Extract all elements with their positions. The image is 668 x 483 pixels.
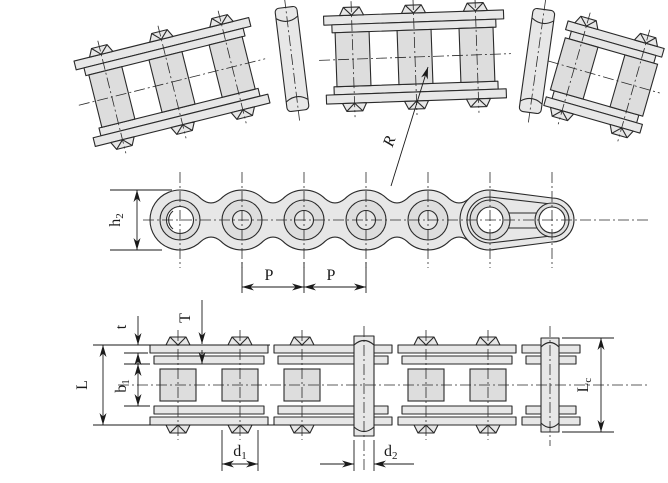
dim-label-d2: d2 [384, 443, 398, 462]
dim-T: T [177, 300, 202, 364]
dim-label-d1: d1 [233, 443, 247, 462]
chain-link [65, 2, 279, 161]
joint-pin [274, 0, 311, 122]
dim-label-radius: R [380, 134, 400, 150]
side-elevation-view: h2 P P [107, 172, 648, 293]
dim-label-T: T [177, 313, 194, 323]
dim-d1: d1 [222, 430, 258, 471]
drawing-canvas: R [0, 0, 668, 483]
dim-label-h2: h2 [107, 213, 126, 227]
dim-label-L: L [74, 380, 91, 390]
dim-label-Lc: Lc [575, 378, 594, 393]
dim-label-t: t [113, 324, 130, 329]
dim-label-pitch-2: P [327, 267, 336, 284]
plan-view: L t T b1 d1 [74, 300, 648, 471]
articulated-chain-view: R [65, 0, 668, 186]
dim-pitch: P P [242, 262, 366, 293]
dim-label-pitch-1: P [265, 267, 274, 284]
dim-t: t [113, 316, 148, 366]
dim-d2: d2 [320, 440, 414, 471]
dim-label-b1: b1 [113, 379, 132, 393]
roller-chain-technical-drawing: R [0, 0, 668, 483]
chain-link [317, 0, 513, 118]
